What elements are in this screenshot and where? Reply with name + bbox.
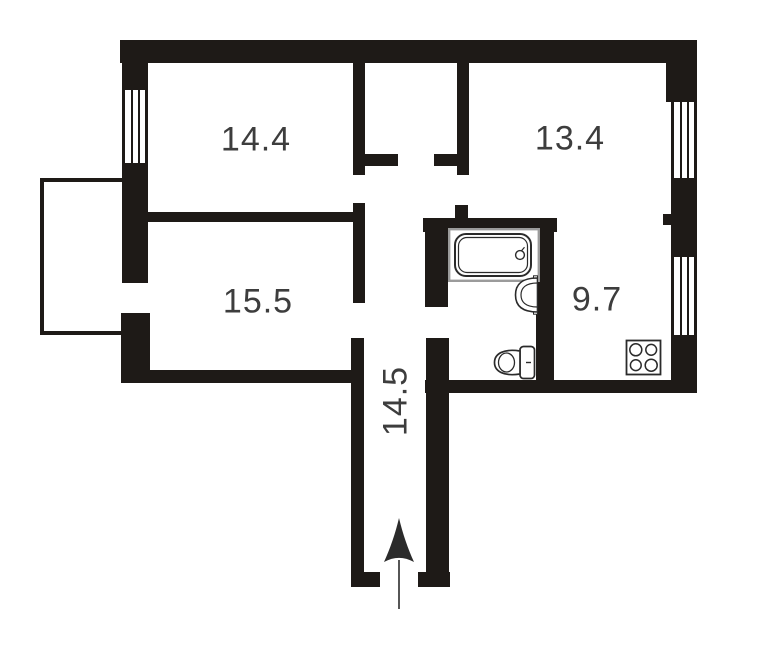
wall — [457, 63, 469, 175]
wall — [351, 338, 364, 587]
window-pane-line — [687, 257, 689, 335]
window-pane-line — [138, 90, 140, 163]
stove-icon — [625, 339, 662, 376]
window-pane-line — [680, 257, 682, 335]
window-pane-line — [687, 102, 689, 178]
floor-plan: 14.4 13.4 15.5 9.7 14.5 — [0, 0, 781, 655]
room-area-label: 13.4 — [535, 120, 605, 159]
entrance-arrow-icon — [379, 516, 420, 611]
wall — [663, 214, 673, 225]
room-area-label: 9.7 — [572, 281, 622, 320]
wall — [353, 203, 365, 303]
wall — [148, 212, 355, 222]
wall — [122, 63, 148, 90]
window-icon — [671, 257, 697, 335]
wall — [148, 370, 364, 383]
window-pane-line — [680, 102, 682, 178]
wall — [671, 335, 697, 393]
wall — [425, 380, 697, 393]
wall — [351, 572, 380, 587]
window-icon — [122, 90, 148, 163]
window-pane-line — [131, 90, 133, 163]
toilet-icon — [492, 344, 536, 381]
wall — [353, 63, 365, 175]
wall — [122, 163, 148, 283]
washbasin-icon — [512, 275, 538, 315]
balcony-outline — [40, 178, 125, 182]
wall — [121, 313, 150, 383]
wall — [434, 154, 457, 166]
wall — [671, 178, 697, 257]
wall — [666, 40, 697, 102]
wall — [418, 572, 450, 587]
bathtub-icon — [448, 228, 540, 282]
balcony-outline — [40, 331, 123, 335]
room-area-label: 14.5 — [377, 366, 416, 436]
room-area-label: 14.4 — [221, 121, 291, 160]
wall — [120, 40, 697, 63]
room-area-label: 15.5 — [223, 283, 293, 322]
wall — [365, 154, 398, 166]
balcony-outline — [40, 178, 44, 335]
wall — [426, 338, 449, 587]
window-icon — [671, 102, 697, 178]
